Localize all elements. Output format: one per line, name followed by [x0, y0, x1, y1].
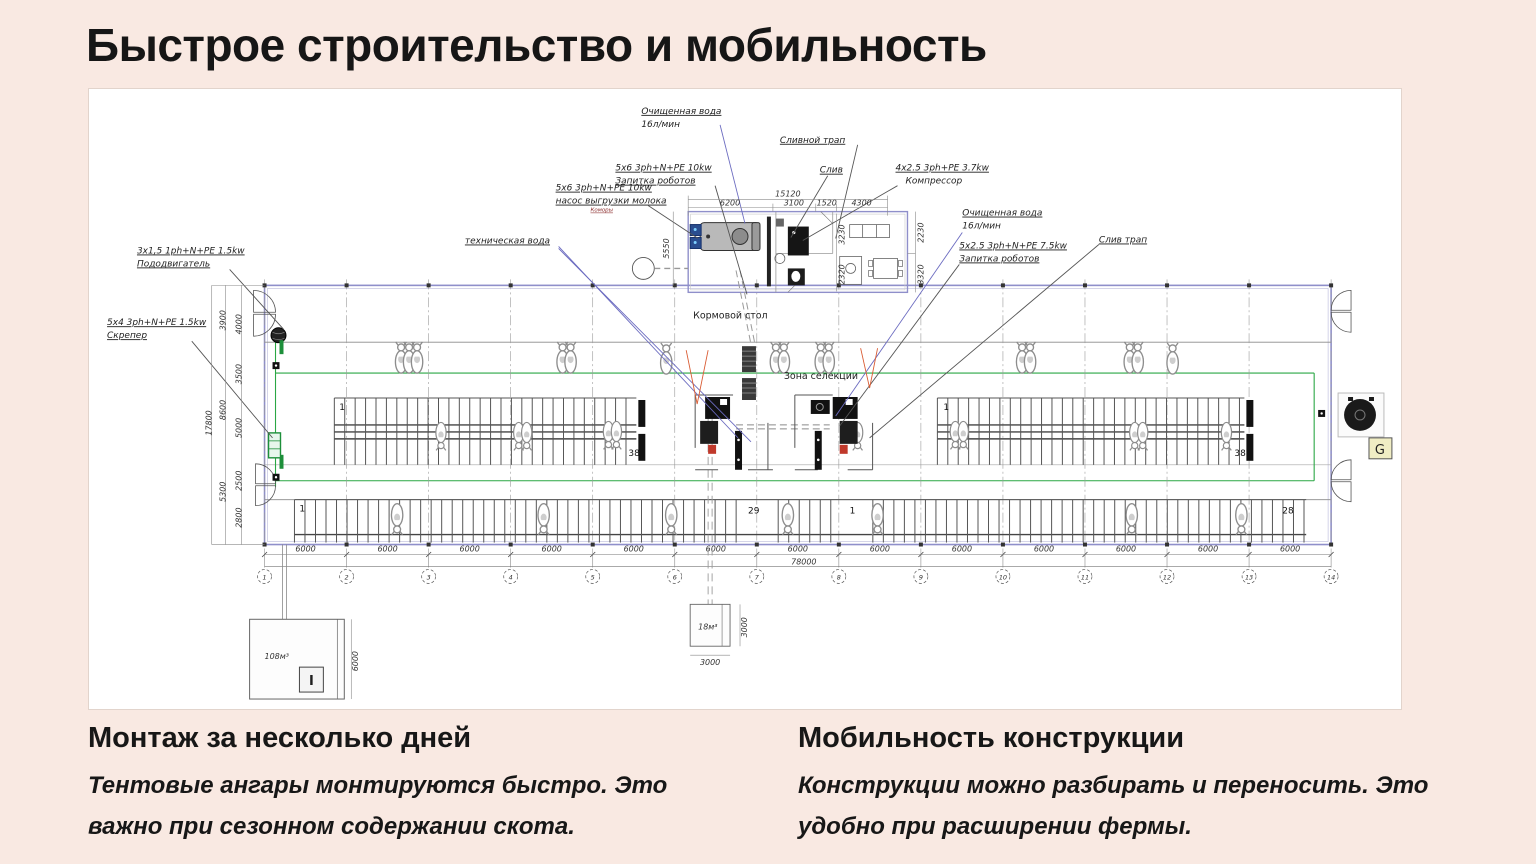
tank-108-mark: I	[309, 674, 314, 689]
grid-number: 2	[345, 573, 349, 581]
cow-icon	[823, 342, 834, 373]
bay-dimension: 6000	[1198, 545, 1218, 554]
compressor-box	[788, 227, 809, 256]
svg-text:Компрессор: Компрессор	[905, 177, 962, 187]
svg-text:3320: 3320	[916, 264, 925, 284]
count-b-end: 28	[1282, 507, 1294, 517]
ann-drain: Слив	[820, 166, 843, 176]
svg-text:Пододвигатель: Пододвигатель	[137, 259, 210, 269]
svg-text:Скрепер: Скрепер	[107, 331, 147, 341]
grid-number: 12	[1163, 573, 1171, 581]
svg-text:3000: 3000	[700, 658, 720, 667]
bay-dimension: 6000	[295, 545, 315, 554]
count-ul-start: 1	[339, 403, 345, 413]
grid-number: 4	[509, 573, 513, 581]
count-ur-end: 38	[1234, 449, 1246, 459]
right-wall-details: G	[1318, 290, 1392, 501]
grid-number: 9	[919, 573, 923, 581]
bay-dimension: 6000	[788, 545, 808, 554]
bay-dimension: 6000	[624, 545, 644, 554]
grid-number: 11	[1081, 573, 1089, 581]
grid-number: 5	[591, 573, 595, 581]
cow-icon	[1167, 343, 1178, 374]
svg-text:3100: 3100	[784, 199, 804, 208]
bay-dimension: 6000	[460, 545, 480, 554]
ann-drain-trap-right: Слив трап	[1099, 236, 1147, 246]
cow-icon	[1138, 422, 1148, 450]
svg-text:2500: 2500	[235, 471, 244, 491]
svg-text:3230: 3230	[838, 224, 847, 244]
drawing-panel: 1234567891011121314600060006000600060006…	[88, 88, 1402, 710]
svg-text:8600: 8600	[219, 400, 228, 420]
label-feed-table: Кормовой стол	[693, 310, 767, 321]
grid-number: 10	[999, 573, 1007, 581]
svg-text:насос выгрузки молока: насос выгрузки молока	[556, 197, 667, 207]
feature-montage: Монтаж за несколько дней Тентовые ангары…	[88, 722, 678, 848]
svg-text:2800: 2800	[235, 507, 244, 527]
bay-dimension: 6000	[542, 545, 562, 554]
feature-montage-heading: Монтаж за несколько дней	[88, 722, 678, 755]
slide-title: Быстрое строительство и мобильность	[86, 18, 987, 72]
cow-icon	[611, 421, 621, 449]
generator-label: G	[1375, 443, 1385, 458]
grid-number: 3	[427, 573, 431, 581]
svg-text:Коморы: Коморы	[590, 208, 613, 214]
svg-text:1520: 1520	[817, 199, 837, 208]
grid-number: 7	[755, 573, 760, 581]
farm-plan-svg: 1234567891011121314600060006000600060006…	[89, 89, 1401, 709]
cow-icon	[1236, 504, 1247, 535]
grid-number: 8	[837, 573, 841, 581]
grid-number: 6	[673, 573, 677, 581]
fan-icon	[1344, 399, 1376, 431]
svg-text:2230: 2230	[916, 222, 925, 242]
ann-robot-power-right: 5x2.5 3ph+N+PE 7.5kw	[959, 241, 1067, 251]
grid-number: 14	[1327, 573, 1335, 581]
feature-mobility-heading: Мобильность конструкции	[798, 722, 1448, 755]
left-wall-details	[254, 290, 286, 505]
svg-text:4300: 4300	[851, 199, 871, 208]
bay-dimension: 6000	[706, 545, 726, 554]
cow-icon	[1126, 504, 1137, 535]
bay-dimension: 6000	[870, 545, 890, 554]
cow-icon	[958, 421, 968, 449]
cow-icon	[436, 422, 446, 450]
partition-wall	[767, 217, 771, 287]
feed-pusher	[742, 378, 756, 400]
milking-robot-a	[695, 395, 773, 470]
feature-mobility-body: Конструкции можно разбирать и переносить…	[798, 765, 1448, 848]
svg-text:Запитка роботов: Запитка роботов	[959, 254, 1039, 264]
grid-number: 13	[1245, 573, 1253, 581]
cow-icon	[782, 504, 793, 535]
cow-icon	[1132, 342, 1143, 373]
ann-robot-power-left: 5x6 3ph+N+PE 10kw	[615, 164, 712, 174]
cow-icon	[661, 343, 672, 374]
cow-icon	[666, 504, 677, 535]
feature-mobility: Мобильность конструкции Конструкции можн…	[798, 722, 1448, 848]
svg-text:3000: 3000	[740, 617, 749, 637]
svg-text:16л/мин: 16л/мин	[962, 222, 1001, 232]
bay-dimension: 6000	[377, 545, 397, 554]
svg-text:3500: 3500	[235, 364, 244, 384]
count-b-mid: 29	[748, 507, 760, 517]
cow-icon	[522, 422, 532, 450]
dim-big-tank: 6000	[351, 651, 360, 671]
selection-gate	[811, 400, 830, 414]
count-b-start: 1	[299, 505, 305, 515]
tank-108-label: 108м³	[265, 652, 289, 661]
ann-drain-trap: Сливной трап	[780, 136, 846, 146]
total-dimension: 78000	[791, 557, 816, 566]
ann-tech-water: техническая вода	[465, 237, 550, 247]
technical-room	[632, 212, 907, 293]
svg-text:2320: 2320	[838, 264, 847, 284]
count-ur-start: 1	[943, 403, 949, 413]
bay-dimension: 6000	[1116, 545, 1136, 554]
cow-icon	[1024, 342, 1035, 373]
svg-text:5550: 5550	[662, 238, 671, 258]
dim-left-total: 17800	[205, 410, 214, 435]
svg-text:4000: 4000	[235, 314, 244, 334]
ann-compressor: 4x2.5 3ph+PE 3.7kw	[896, 164, 990, 174]
tank-18-label: 18м³	[698, 622, 717, 631]
svg-text:6200: 6200	[720, 199, 740, 208]
cow-icon	[1221, 422, 1231, 450]
dim-room-total: 15120	[775, 190, 800, 199]
label-selection-zone: Зона селекции	[784, 371, 858, 382]
feed-pusher	[742, 346, 756, 372]
cow-icon	[411, 342, 422, 373]
ann-clean-water-right: Очищенная вода	[962, 209, 1042, 219]
cow-icon	[778, 342, 789, 373]
svg-text:16л/мин: 16л/мин	[641, 120, 680, 130]
bay-dimension: 6000	[1280, 545, 1300, 554]
count-ul-end: 38	[628, 449, 640, 459]
grid-number: 1	[262, 573, 266, 581]
cow-icon	[538, 504, 549, 535]
svg-text:3900: 3900	[219, 310, 228, 330]
scraper-unit	[269, 433, 281, 458]
lagoon-tanks: 108м³ I 18м³	[250, 545, 730, 700]
bay-dimension: 6000	[1034, 545, 1054, 554]
bay-dimension: 6000	[952, 545, 972, 554]
ann-milk-pump: 5x6 3ph+N+PE 10kw	[556, 184, 653, 194]
ann-pusher: 3x1,5 1ph+N+PE 1.5kw	[137, 246, 245, 256]
ann-clean-water-left: Очищенная вода	[641, 107, 721, 117]
svg-text:5000: 5000	[235, 418, 244, 438]
ann-scraper: 5x4 3ph+N+PE 1.5kw	[107, 318, 207, 328]
cow-icon	[872, 504, 883, 535]
building-outline	[265, 285, 1332, 544]
count-b-mid2: 1	[850, 507, 856, 517]
cow-icon	[565, 342, 576, 373]
svg-text:5300: 5300	[219, 482, 228, 502]
cow-icon	[391, 504, 402, 535]
feature-montage-body: Тентовые ангары монтируются быстро. Это …	[88, 765, 678, 848]
feed-pusher-motor	[271, 328, 286, 343]
